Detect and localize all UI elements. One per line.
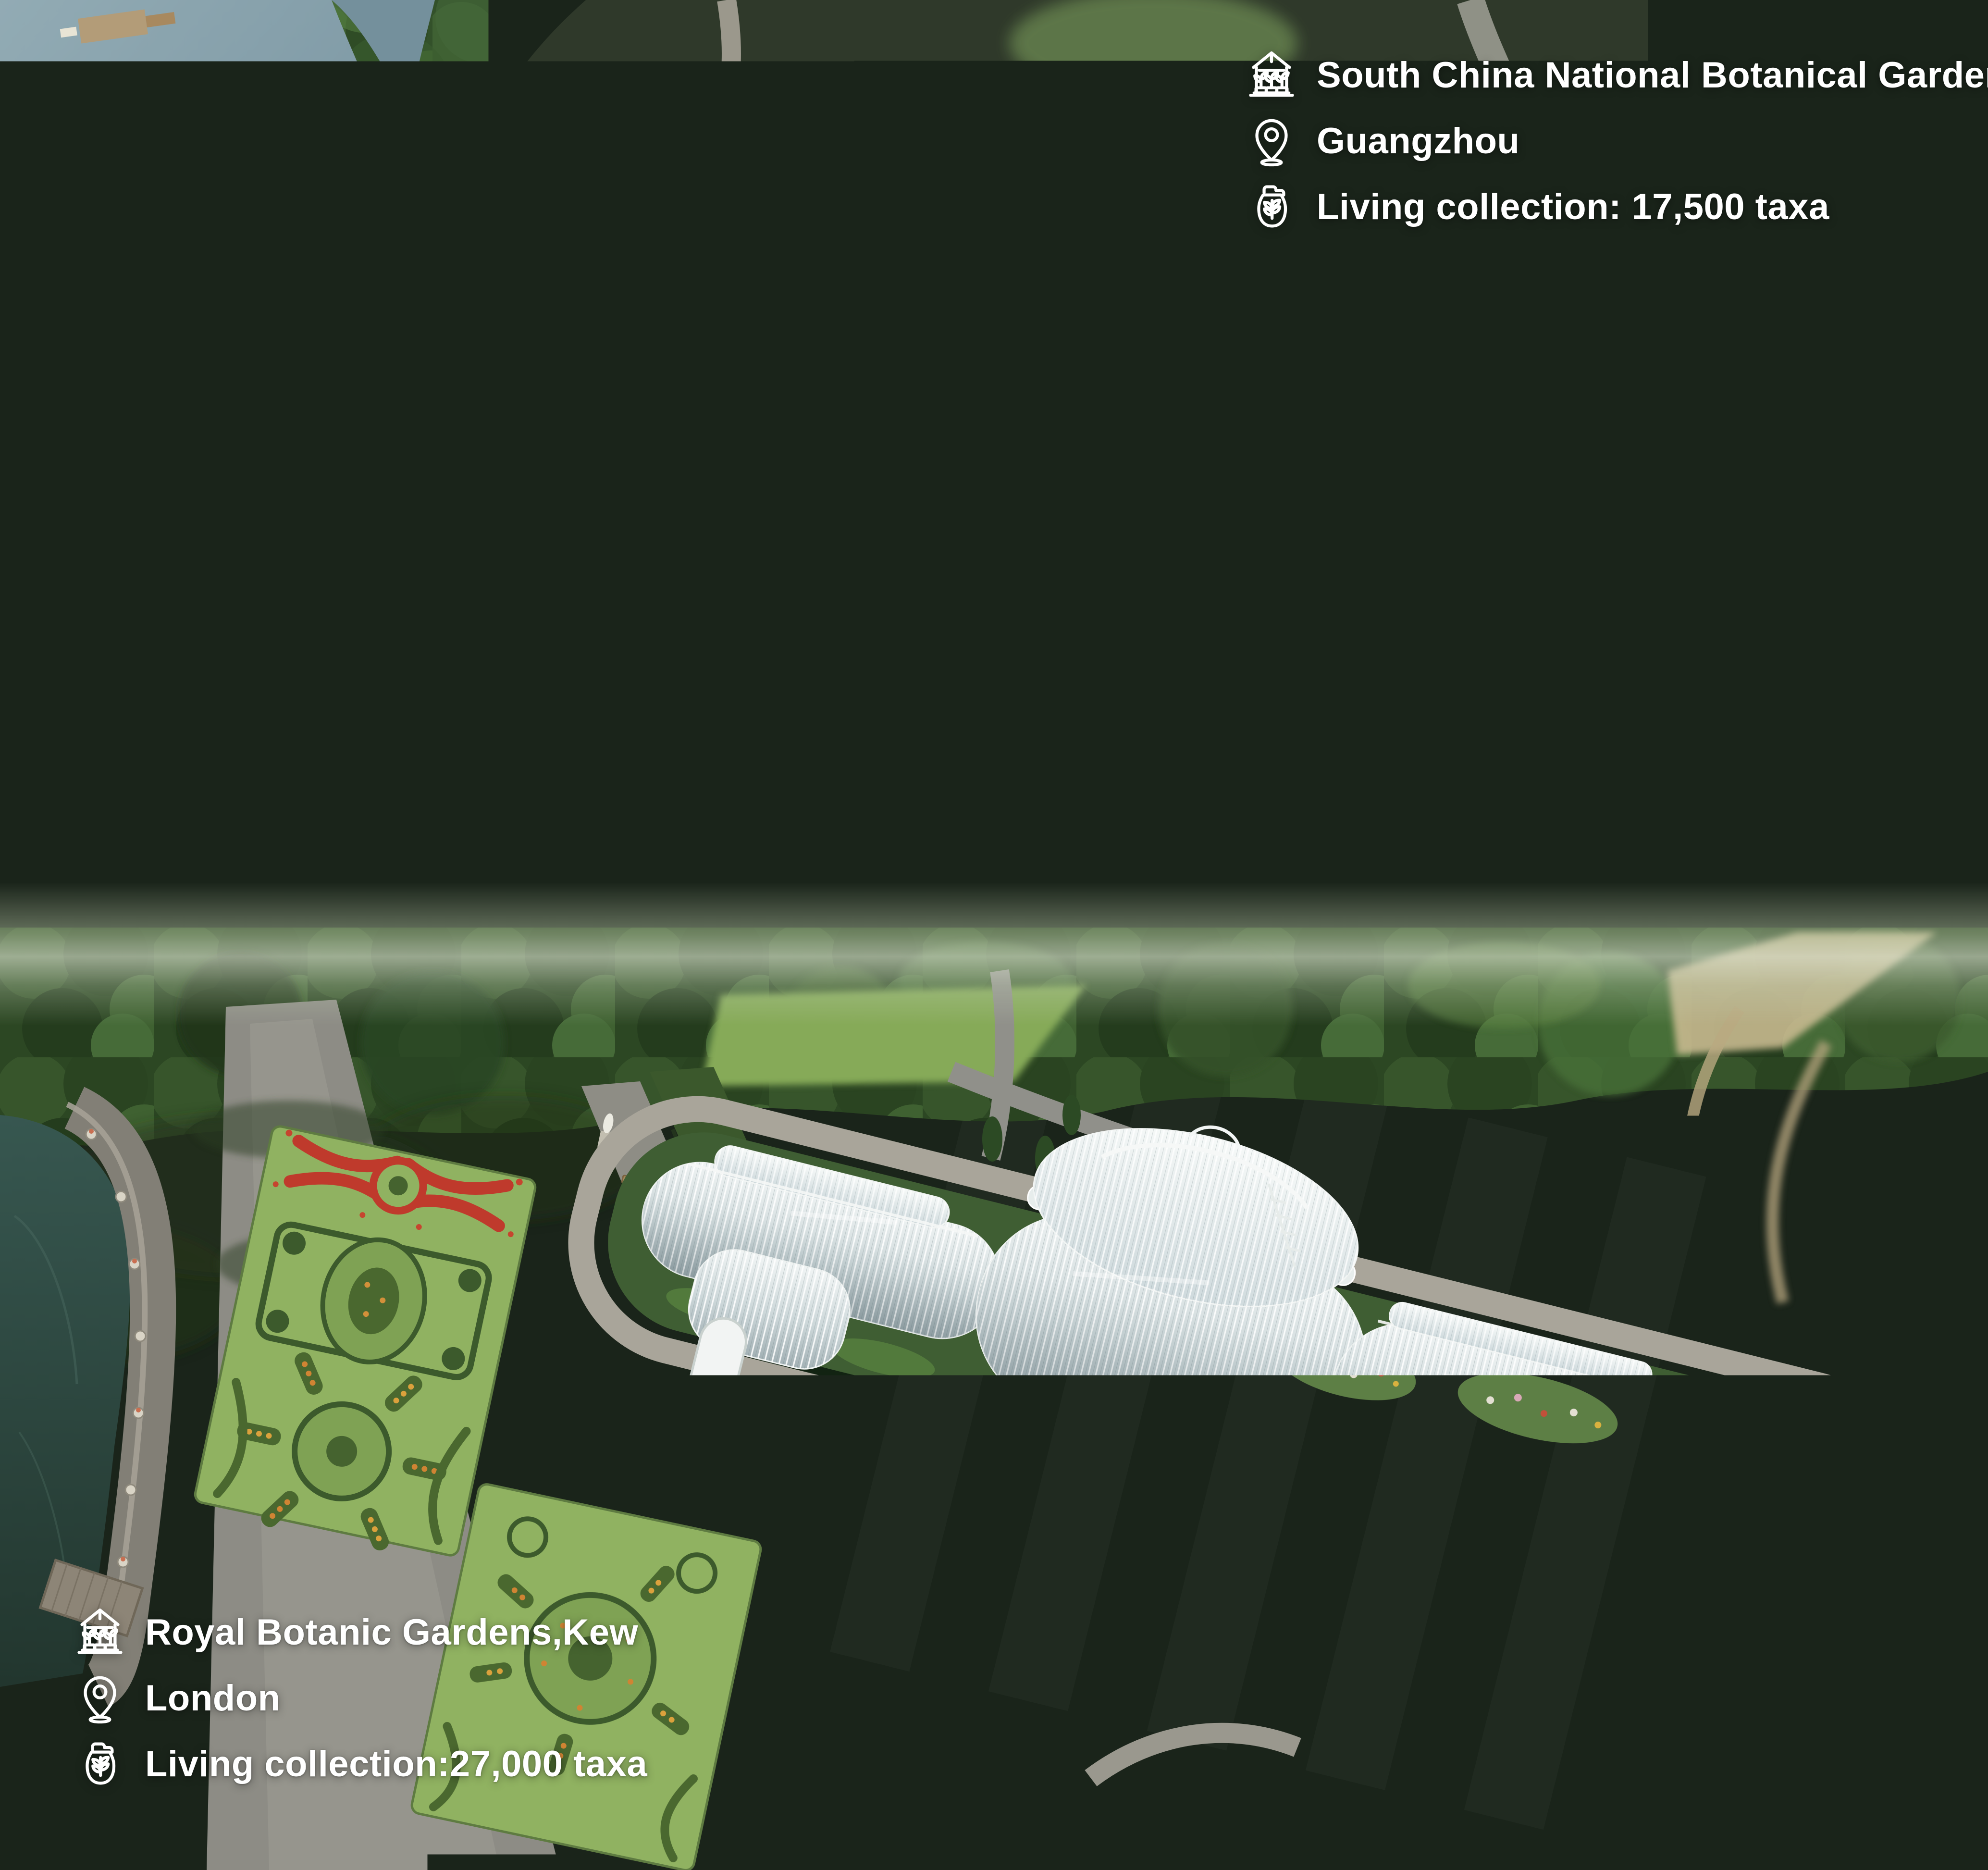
bottom-city-row: London <box>72 1669 647 1727</box>
top-caption: South China National Botanical Garden Gu… <box>1244 46 1988 235</box>
greenhouse-icon <box>1244 47 1299 103</box>
location-pin-icon <box>1244 113 1299 169</box>
bottom-caption: Royal Botanic Gardens,Kew London Living … <box>72 1603 647 1793</box>
plant-jar-icon <box>1244 179 1299 235</box>
top-city-row: Guangzhou <box>1244 112 1988 170</box>
info-kiosk <box>667 834 698 857</box>
location-pin-icon <box>72 1670 128 1726</box>
red-flower-bed-bottom <box>264 1824 351 1857</box>
bottom-garden-name: Royal Botanic Gardens,Kew <box>145 1611 638 1653</box>
photo-comparison-canvas: South China National Botanical Garden Gu… <box>0 0 1988 1870</box>
top-city-name: Guangzhou <box>1317 120 1519 162</box>
bottom-city-name: London <box>145 1677 281 1719</box>
top-collection-row: Living collection: 17,500 taxa <box>1244 178 1988 235</box>
bottom-collection-row: Living collection:27,000 taxa <box>72 1735 647 1793</box>
plant-jar-icon <box>72 1736 128 1792</box>
greenhouse-icon <box>72 1604 128 1660</box>
bottom-collection-size: Living collection:27,000 taxa <box>145 1743 647 1785</box>
top-collection-size: Living collection: 17,500 taxa <box>1317 186 1829 228</box>
bottom-garden-row: Royal Botanic Gardens,Kew <box>72 1603 647 1661</box>
top-garden-row: South China National Botanical Garden <box>1244 46 1988 104</box>
top-garden-name: South China National Botanical Garden <box>1317 54 1988 96</box>
